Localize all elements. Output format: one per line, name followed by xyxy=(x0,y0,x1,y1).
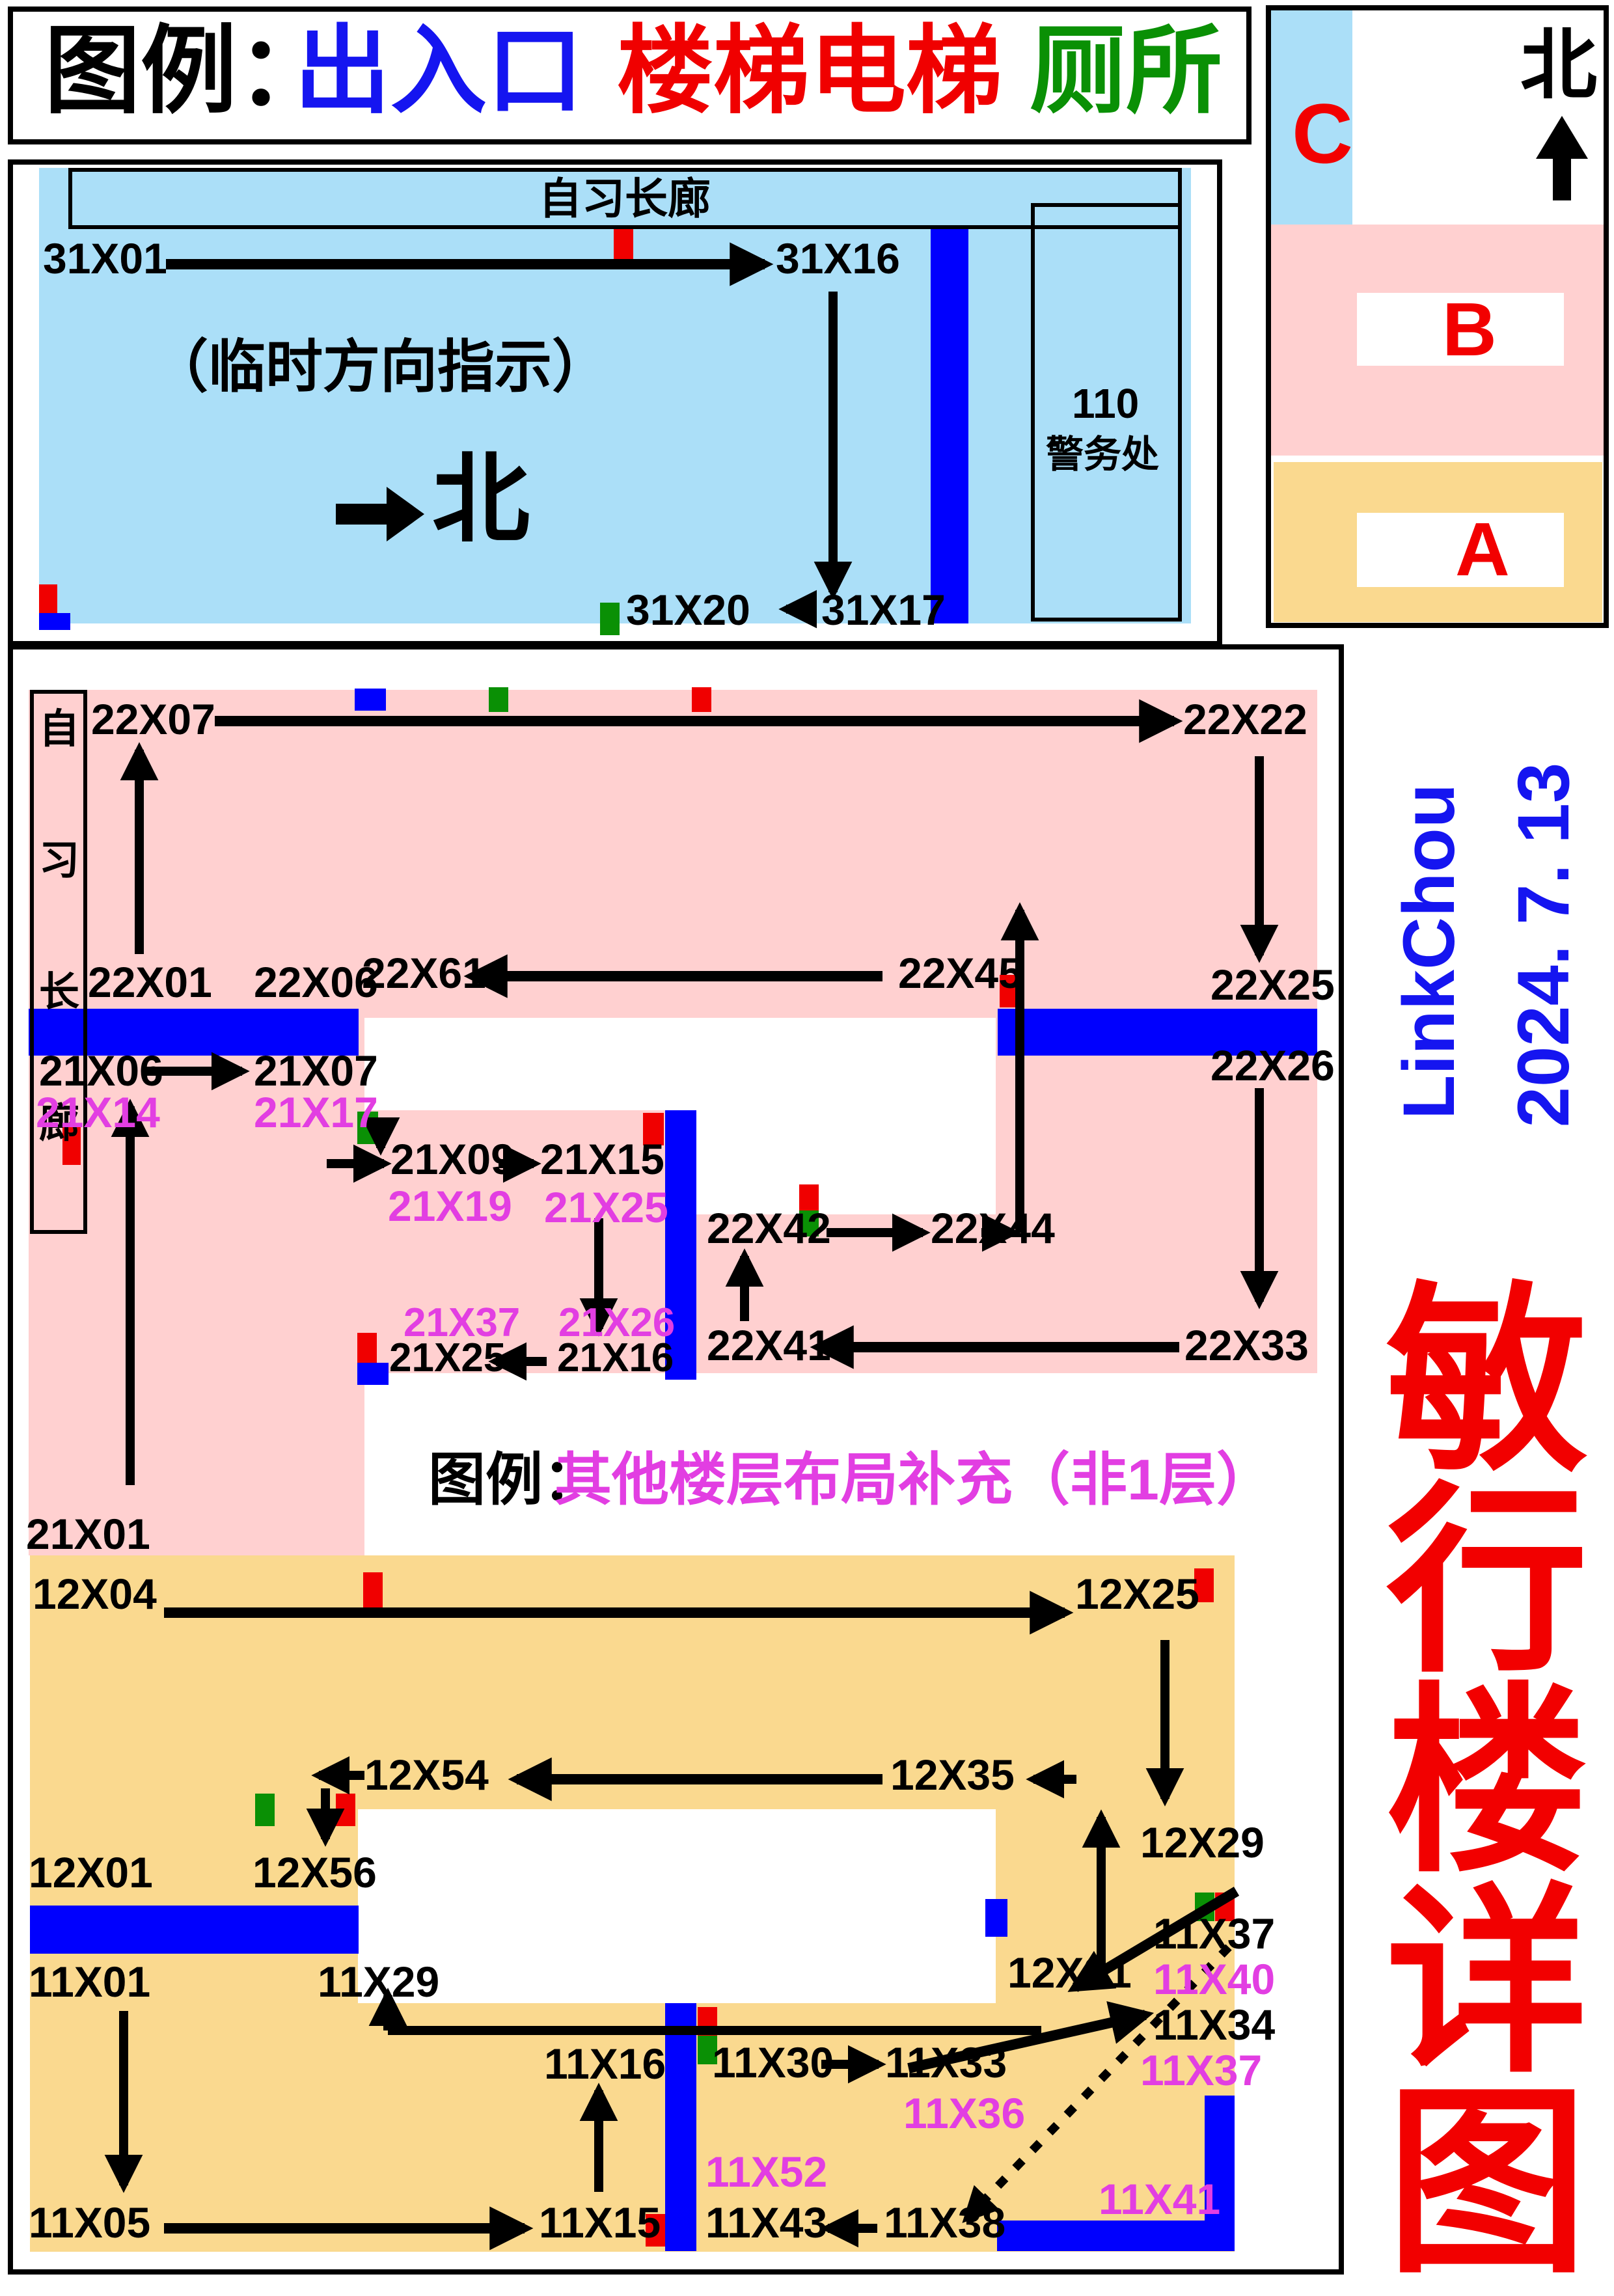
f1-11X16: 11X16 xyxy=(544,2042,666,2085)
f3-temp-note: （临时方向指示） xyxy=(151,338,609,396)
corridor3-label: 自习长廊 xyxy=(539,177,711,220)
side-author: LinkChou xyxy=(1393,784,1466,1119)
title-2: 行 xyxy=(1386,1481,1588,1683)
f2-21X07: 21X07 xyxy=(254,1049,378,1092)
f2-21X16: 21X16 xyxy=(557,1338,674,1378)
c2-xi: 习 xyxy=(39,841,79,881)
f2-21X17: 21X17 xyxy=(254,1091,378,1134)
f1-11X38: 11X38 xyxy=(884,2201,1005,2244)
f1-12X31: 12X31 xyxy=(1007,1951,1132,1994)
f1-11X01: 11X01 xyxy=(29,1960,150,2003)
f1-12X29: 12X29 xyxy=(1140,1821,1265,1864)
f3-31X17: 31X17 xyxy=(821,588,946,631)
f2-21X01: 21X01 xyxy=(26,1512,150,1555)
minimap-b: B xyxy=(1442,292,1497,367)
north-arrow-head xyxy=(1536,116,1588,159)
f2-22X42: 22X42 xyxy=(707,1207,831,1250)
f2-22X01: 22X01 xyxy=(88,961,212,1004)
f1-11X34: 11X34 xyxy=(1153,2003,1275,2046)
f2-22X33: 22X33 xyxy=(1184,1324,1309,1367)
f3-110: 110 xyxy=(1072,383,1139,424)
f2-22X26: 22X26 xyxy=(1210,1044,1335,1087)
f1-11X33: 11X33 xyxy=(885,2041,1007,2084)
f2-22X45: 22X45 xyxy=(898,951,1022,994)
f2-22X07: 22X07 xyxy=(91,698,215,741)
legend-toilet: 厕所 xyxy=(1030,23,1222,120)
f1-11X37a: 11X37 xyxy=(1153,1912,1275,1955)
f1-11X37b: 11X37 xyxy=(1140,2049,1262,2092)
f3-31X01: 31X01 xyxy=(43,237,167,280)
f1-12X56: 12X56 xyxy=(253,1851,377,1894)
title-5: 图 xyxy=(1386,2083,1588,2284)
f2-21X09: 21X09 xyxy=(390,1138,515,1181)
minimap-north: 北 xyxy=(1520,27,1597,104)
f2-22X41: 22X41 xyxy=(707,1324,831,1367)
legend-title: 图例： xyxy=(44,23,333,120)
f1-11X15: 11X15 xyxy=(539,2201,661,2244)
f2-22X61: 22X61 xyxy=(362,951,486,994)
f1-12X35: 12X35 xyxy=(890,1753,1015,1796)
side-date: 2024. 7. 13 xyxy=(1507,763,1580,1128)
page: { "title": "敏行楼详图", "author": "LinkChou"… xyxy=(0,0,1614,2282)
f2-21X06: 21X06 xyxy=(39,1049,163,1092)
title-1: 敏 xyxy=(1386,1281,1588,1483)
f1-11X30: 11X30 xyxy=(712,2041,834,2084)
f1-11X41: 11X41 xyxy=(1099,2178,1220,2221)
legend2-note: 其他楼层布局补充（非1层） xyxy=(554,1451,1274,1509)
f1-11X52: 11X52 xyxy=(705,2150,827,2193)
minimap-c: C xyxy=(1292,91,1353,176)
f1-11X05: 11X05 xyxy=(29,2201,150,2244)
title-4: 详 xyxy=(1386,1882,1588,2084)
f2-22X25: 22X25 xyxy=(1210,963,1335,1006)
f1-11X36: 11X36 xyxy=(903,2092,1025,2135)
f1-12X04: 12X04 xyxy=(33,1572,157,1615)
f2-22X06: 22X06 xyxy=(254,961,378,1004)
f2-21X25m: 21X25 xyxy=(544,1186,668,1229)
temp-arrow-head xyxy=(387,487,424,541)
f1-11X40: 11X40 xyxy=(1153,1958,1275,2001)
f3-31X20: 31X20 xyxy=(626,588,750,631)
f1-12X01: 12X01 xyxy=(29,1851,153,1894)
f2-22X22: 22X22 xyxy=(1183,698,1307,741)
f2-22X44: 22X44 xyxy=(931,1207,1055,1250)
f3-police: 警务处 xyxy=(1046,436,1159,474)
f2-21X15: 21X15 xyxy=(540,1138,664,1181)
f2-21X14: 21X14 xyxy=(36,1091,160,1134)
f3-31X16: 31X16 xyxy=(776,237,900,280)
f1-11X43: 11X43 xyxy=(705,2201,827,2244)
f3-north: 北 xyxy=(432,450,530,548)
minimap-a: A xyxy=(1455,512,1510,587)
c2-chang: 长 xyxy=(39,972,79,1013)
legend-exit: 出入口 xyxy=(294,23,583,120)
title-3: 楼 xyxy=(1386,1682,1588,1883)
f1-12X54: 12X54 xyxy=(364,1753,489,1796)
f2-21X19: 21X19 xyxy=(388,1184,512,1227)
legend-stairs: 楼梯电梯 xyxy=(617,23,1002,120)
f2-21X25: 21X25 xyxy=(389,1338,506,1378)
c2-zi: 自 xyxy=(39,709,79,750)
f1-11X29: 11X29 xyxy=(318,1960,439,2003)
f1-12X25: 12X25 xyxy=(1075,1572,1199,1615)
